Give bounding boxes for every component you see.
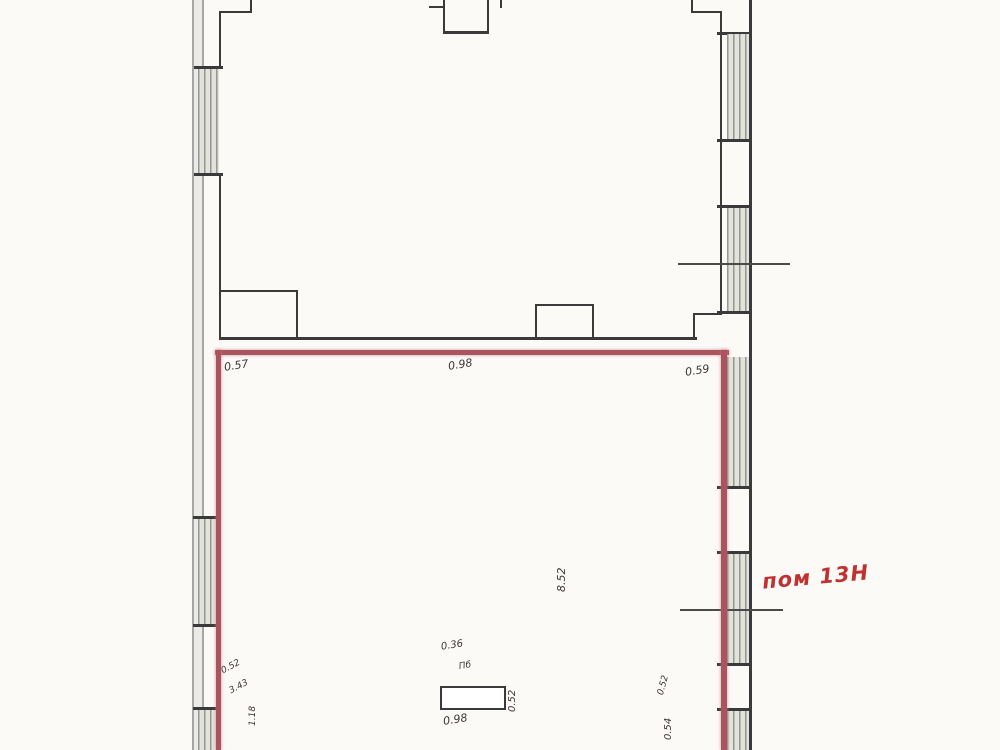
top-niche-right-edge xyxy=(487,0,489,33)
floor-plan: 0.57 0.98 0.59 8.52 0.36 Пб 0.52 0.98 0.… xyxy=(0,0,1000,750)
wall-right-outer xyxy=(749,0,752,750)
wall-left-inner-upper-a xyxy=(219,11,221,68)
section-mark-lower xyxy=(680,609,783,611)
window-right-2 xyxy=(727,208,749,312)
wall-right-inner-upper xyxy=(720,12,722,314)
wall-divider xyxy=(219,337,697,340)
dimension-label-room-length: 8.52 xyxy=(556,568,567,593)
window-tick xyxy=(717,311,752,314)
room-name-label: пом 13Н xyxy=(761,560,870,593)
top-niche-left-edge xyxy=(443,0,445,33)
dimension-label-bottom-left-upper: 0.52 xyxy=(220,659,242,676)
top-wall-stub-left xyxy=(429,6,444,8)
window-left-lower-1 xyxy=(198,519,217,624)
window-right-3 xyxy=(727,357,749,487)
dimension-label-divider-center: 0.98 xyxy=(447,357,473,372)
top-wall-stub-right xyxy=(500,0,502,8)
stove-symbol xyxy=(440,686,506,710)
niche-left xyxy=(219,290,298,339)
dimension-label-divider-right: 0.59 xyxy=(684,363,710,378)
top-niche-bottom-edge xyxy=(443,31,489,34)
dimension-label-stove-side: 0.52 xyxy=(508,690,518,712)
wall-left-inner-upper-b xyxy=(219,176,221,292)
niche-right xyxy=(535,304,594,339)
wall-top-left-jog xyxy=(219,11,252,13)
window-right-1 xyxy=(727,34,749,140)
dimension-label-bottom-left-vertical: 1.18 xyxy=(249,706,258,726)
room-outline-left xyxy=(216,350,221,750)
window-left-lower-2 xyxy=(198,710,217,750)
room-outline-top xyxy=(215,350,729,355)
window-tick xyxy=(717,139,752,142)
section-mark-upper xyxy=(678,263,790,265)
wall-divider-step-vertical xyxy=(693,314,695,340)
dimension-label-stove-bottom: 0.98 xyxy=(442,712,468,727)
dimension-label-divider-left: 0.57 xyxy=(223,358,249,373)
dimension-label-bottom-right-upper: 0.52 xyxy=(657,675,671,697)
dimension-label-bottom-left-lower: 3.43 xyxy=(228,679,250,696)
wall-top-right-jog xyxy=(691,11,722,13)
dimension-label-stove-top: 0.36 xyxy=(440,639,464,652)
window-left-upper xyxy=(198,69,219,173)
stove-tag-label: Пб xyxy=(458,661,472,672)
dimension-label-bottom-right-vertical: 0.54 xyxy=(664,718,674,740)
room-outline-right xyxy=(721,350,727,750)
window-right-5 xyxy=(727,711,749,750)
